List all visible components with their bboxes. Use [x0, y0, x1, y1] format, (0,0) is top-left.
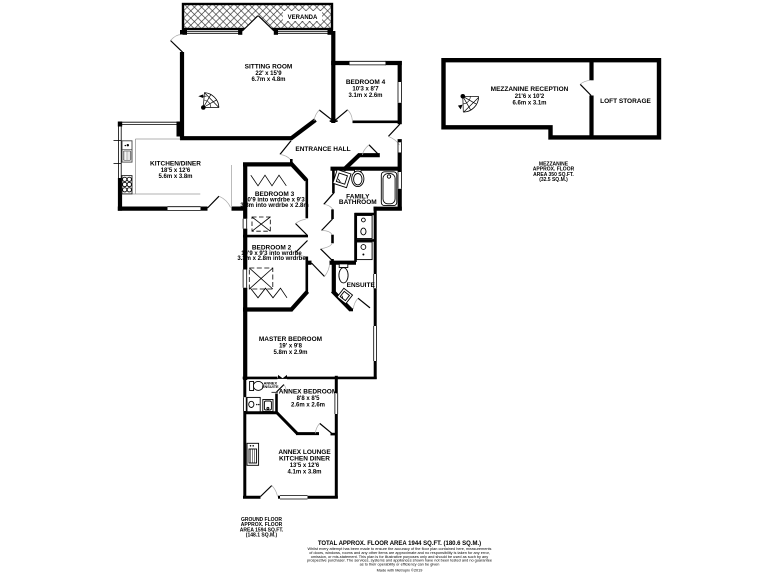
svg-text:ENSUITE: ENSUITE: [347, 282, 376, 289]
svg-text:TOTAL APPROX. FLOOR AREA 1944: TOTAL APPROX. FLOOR AREA 1944 SQ.FT. (18…: [318, 541, 481, 547]
svg-text:KITCHEN/DINER: KITCHEN/DINER: [150, 161, 201, 168]
svg-text:BEDROOM 4: BEDROOM 4: [346, 79, 386, 86]
svg-text:22' x 15'9: 22' x 15'9: [255, 71, 282, 77]
svg-text:MASTER BEDROOM: MASTER BEDROOM: [259, 336, 322, 343]
svg-text:(32.5 SQ.M.): (32.5 SQ.M.): [539, 177, 568, 183]
svg-text:MEZZANINE RECEPTION: MEZZANINE RECEPTION: [491, 86, 569, 93]
svg-text:ENSUITE: ENSUITE: [262, 385, 279, 389]
svg-text:2.6m x 2.6m: 2.6m x 2.6m: [291, 402, 325, 408]
svg-text:13'5 x 12'6: 13'5 x 12'6: [290, 463, 320, 469]
svg-text:6.6m x 3.1m: 6.6m x 3.1m: [512, 100, 546, 106]
svg-text:3.3m into wrdrbe x 2.8m: 3.3m into wrdrbe x 2.8m: [240, 203, 308, 209]
svg-text:10'3 x 8'7: 10'3 x 8'7: [352, 87, 379, 93]
svg-text:4.1m x 3.8m: 4.1m x 3.8m: [287, 470, 321, 476]
svg-text:8'8 x 8'5: 8'8 x 8'5: [297, 396, 321, 402]
svg-text:ANNEX BEDROOM: ANNEX BEDROOM: [279, 389, 338, 396]
svg-text:VERANDA: VERANDA: [288, 15, 318, 21]
svg-text:as to their operability or eff: as to their operability or efficiency ca…: [360, 562, 440, 566]
svg-text:Made with Metropix ©2019: Made with Metropix ©2019: [377, 569, 423, 573]
svg-text:(148.1 SQ.M.): (148.1 SQ.M.): [246, 533, 278, 539]
svg-text:5.6m x 3.8m: 5.6m x 3.8m: [158, 174, 192, 180]
svg-text:BATHROOM: BATHROOM: [339, 199, 377, 206]
svg-text:LOFT STORAGE: LOFT STORAGE: [600, 98, 651, 105]
svg-text:ENTRANCE HALL: ENTRANCE HALL: [295, 146, 350, 153]
svg-text:21'6 x 10'2: 21'6 x 10'2: [515, 94, 545, 100]
svg-text:6.7m x 4.8m: 6.7m x 4.8m: [251, 77, 285, 83]
svg-text:3.3m x 2.8m into wrdrbe: 3.3m x 2.8m into wrdrbe: [237, 256, 306, 262]
svg-text:3.1m x 2.6m: 3.1m x 2.6m: [348, 93, 382, 99]
svg-text:5.8m x 2.9m: 5.8m x 2.9m: [273, 350, 307, 356]
svg-text:19' x 9'8: 19' x 9'8: [279, 344, 303, 350]
svg-text:KITCHEN DINER: KITCHEN DINER: [279, 456, 330, 463]
svg-text:SITTING ROOM: SITTING ROOM: [245, 63, 293, 70]
